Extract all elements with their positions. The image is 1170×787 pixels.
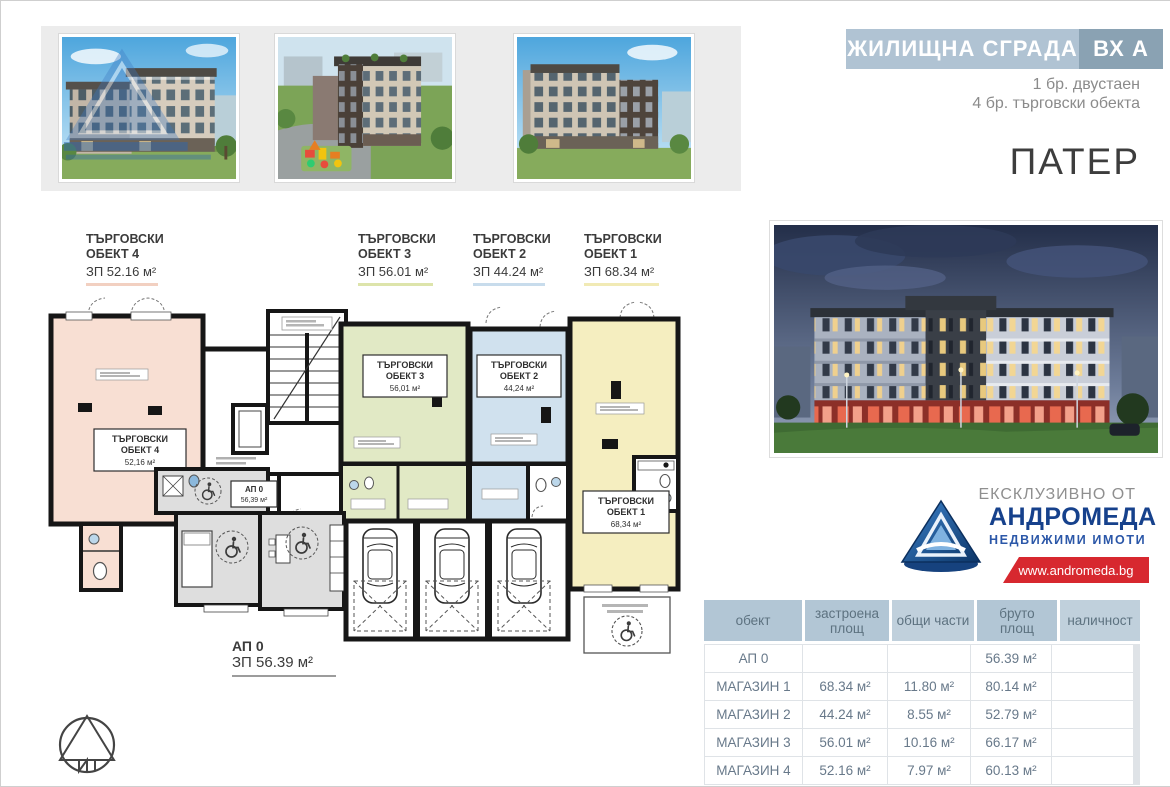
unit3-color-bar — [358, 283, 433, 286]
svg-text:ОБЕКТ 3: ОБЕКТ 3 — [386, 371, 424, 381]
table-row: АП 0 56.39 м² — [705, 645, 1139, 672]
building-render-1-image — [62, 37, 236, 179]
car-icon — [507, 529, 541, 603]
unit1-color-bar — [584, 283, 659, 286]
svg-text:АП 0: АП 0 — [245, 485, 264, 494]
unit2-color-bar — [473, 283, 545, 286]
area-table: обект застроена площ общи части бруто пл… — [704, 600, 1140, 785]
brand-name: АНДРОМЕДА — [989, 504, 1157, 531]
brochure-page: ЖИЛИЩНА СГРАДА ВХ А 1 бр. двустаен 4 бр.… — [0, 0, 1170, 787]
building-photo-frame — [769, 220, 1163, 458]
svg-text:ОБЕКТ 1: ОБЕКТ 1 — [607, 507, 645, 517]
svg-text:44,24 м²: 44,24 м² — [504, 384, 535, 393]
website-url[interactable]: www.andromeda.bg — [1019, 563, 1134, 578]
unit-mix-line1: 1 бр. двустаен — [972, 75, 1140, 94]
car-icon — [435, 529, 469, 603]
unit3-room: ТЪРГОВСКИ ОБЕКТ 3 56,01 м² — [341, 324, 468, 522]
renders-band — [41, 26, 741, 191]
col-common-parts: общи части — [892, 600, 974, 641]
unit2-label: ТЪРГОВСКИ ОБЕКТ 2 ЗП 44.24 м² — [473, 232, 545, 286]
building-render-1 — [58, 33, 240, 183]
floor-plan: ТЪРГОВСКИ ОБЕКТ 4 52,16 м² — [36, 289, 696, 681]
andromeda-logo-icon — [899, 498, 983, 576]
svg-text:52,16 м²: 52,16 м² — [125, 458, 156, 467]
entrance-badge: ВХ А — [1079, 29, 1163, 69]
svg-text:56,39 м²: 56,39 м² — [241, 497, 268, 504]
svg-text:ТЪРГОВСКИ: ТЪРГОВСКИ — [491, 360, 547, 370]
brand-subtitle: НЕДВИЖИМИ ИМОТИ — [989, 533, 1157, 547]
table-header-row: обект застроена площ общи части бруто пл… — [704, 600, 1140, 641]
exclusive-label: ЕКСКЛУЗИВНО ОТ — [979, 486, 1137, 504]
unit4-label: ТЪРГОВСКИ ОБЕКТ 4 ЗП 52.16 м² — [86, 232, 158, 286]
unit4-color-bar — [86, 283, 158, 286]
building-night-render — [774, 225, 1158, 453]
stairwell — [268, 311, 346, 423]
floor-title: ПАТЕР — [1010, 141, 1140, 183]
building-render-2 — [274, 33, 456, 183]
svg-text:ОБЕКТ 4: ОБЕКТ 4 — [121, 445, 159, 455]
table-row: МАГАЗИН 2 44.24 м² 8.55 м² 52.79 м² — [705, 701, 1139, 728]
website-banner[interactable]: www.andromeda.bg — [1003, 557, 1149, 583]
unit3-label: ТЪРГОВСКИ ОБЕКТ 3 ЗП 56.01 м² — [358, 232, 433, 286]
table-row: МАГАЗИН 3 56.01 м² 10.16 м² 66.17 м² — [705, 729, 1139, 756]
table-body: АП 0 56.39 м² МАГАЗИН 1 68.34 м² 11.80 м… — [704, 644, 1140, 785]
table-row: МАГАЗИН 4 52.16 м² 7.97 м² 60.13 м² — [705, 757, 1139, 784]
col-object: обект — [704, 600, 802, 641]
building-render-3-image — [517, 37, 691, 179]
col-gross-area: бруто площ — [977, 600, 1057, 641]
unit1-room: ТЪРГОВСКИ ОБЕКТ 1 68,34 м² — [570, 319, 678, 592]
accessible-parking-legend — [584, 597, 670, 653]
col-availability: наличност — [1060, 600, 1140, 641]
car-icon — [363, 529, 397, 603]
svg-text:68,34 м²: 68,34 м² — [611, 520, 642, 529]
ap0-color-bar — [232, 675, 336, 677]
unit2-room: ТЪРГОВСКИ ОБЕКТ 2 44,24 м² — [470, 329, 568, 522]
unit-mix: 1 бр. двустаен 4 бр. търговски обекта — [972, 75, 1140, 113]
brand-block: АНДРОМЕДА НЕДВИЖИМИ ИМОТИ — [989, 504, 1157, 547]
title-band: ЖИЛИЩНА СГРАДА ВХ А — [846, 29, 1163, 69]
table-row: МАГАЗИН 1 68.34 м² 11.80 м² 80.14 м² — [705, 673, 1139, 700]
unit-mix-line2: 4 бр. търговски обекта — [972, 94, 1140, 113]
svg-text:ТЪРГОВСКИ: ТЪРГОВСКИ — [598, 496, 654, 506]
col-built-area: застроена площ — [805, 600, 889, 641]
andromeda-triangle-icon — [899, 498, 983, 576]
elevator — [233, 405, 267, 453]
svg-text:ТЪРГОВСКИ: ТЪРГОВСКИ — [112, 434, 168, 444]
garages — [346, 521, 568, 639]
floor-plan-drawing: ТЪРГОВСКИ ОБЕКТ 4 52,16 м² — [36, 289, 696, 681]
building-title: ЖИЛИЩНА СГРАДА — [846, 29, 1079, 69]
ap0-caption: АП 0 ЗП 56.39 м² — [232, 638, 336, 677]
svg-text:ОБЕКТ 2: ОБЕКТ 2 — [500, 371, 538, 381]
svg-text:56,01 м²: 56,01 м² — [390, 384, 421, 393]
svg-text:ТЪРГОВСКИ: ТЪРГОВСКИ — [377, 360, 433, 370]
unit4-bathroom — [81, 524, 121, 590]
building-render-2-image — [278, 37, 452, 179]
north-compass-icon — [49, 709, 125, 781]
unit1-label: ТЪРГОВСКИ ОБЕКТ 1 ЗП 68.34 м² — [584, 232, 659, 286]
building-render-3 — [513, 33, 695, 183]
